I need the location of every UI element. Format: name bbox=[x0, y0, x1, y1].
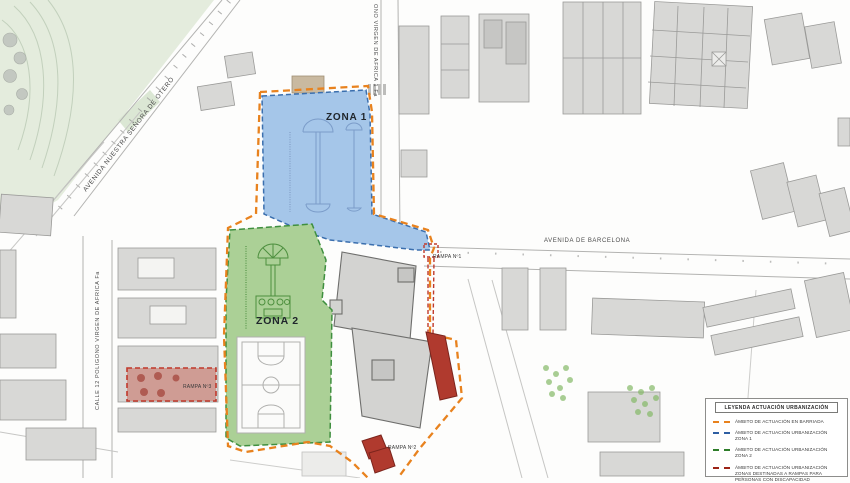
zona1-dash-swatch bbox=[713, 432, 730, 434]
rampa3-label: RAMPA Nº3 bbox=[183, 384, 212, 390]
street-label-virgen-africa: ONO VIRGEN DE AFRICA 1 Fa bbox=[372, 4, 378, 97]
sports-court bbox=[237, 337, 305, 433]
zone2-label: ZONA 2 bbox=[256, 315, 299, 327]
legend-item-barriada: ÁMBITO DE ACTUACIÓN EN BARRIADA bbox=[706, 419, 847, 425]
legend-item-zona2: ÁMBITO DE ACTUACIÓN URBANIZACIÓN ZONA 2 bbox=[706, 447, 847, 459]
rampa-2: RAMPA Nº2 bbox=[362, 435, 417, 473]
zona2-dash-swatch bbox=[713, 449, 730, 451]
legend-item-label: ÁMBITO DE ACTUACIÓN URBANIZACIÓN ZONAS D… bbox=[735, 465, 840, 483]
legend-title: LEYENDA ACTUACIÓN URBANIZACIÓN bbox=[715, 402, 838, 413]
legend-item-label: ÁMBITO DE ACTUACIÓN URBANIZACIÓN ZONA 2 bbox=[735, 447, 840, 459]
zone-2-area: ZONA 2 bbox=[226, 224, 332, 446]
central-building-complex bbox=[330, 252, 432, 428]
legend-item-label: ÁMBITO DE ACTUACIÓN URBANIZACIÓN ZONA 1 bbox=[735, 430, 840, 442]
legend-item-rampas: ÁMBITO DE ACTUACIÓN URBANIZACIÓN ZONAS D… bbox=[706, 465, 847, 483]
zone1-label: ZONA 1 bbox=[326, 112, 367, 123]
street-label-avenida-barcelona: AVENIDA DE BARCELONA bbox=[544, 238, 630, 244]
rampa2-label: RAMPA Nº2 bbox=[388, 445, 417, 451]
legend-item-zona1: ÁMBITO DE ACTUACIÓN URBANIZACIÓN ZONA 1 bbox=[706, 430, 847, 442]
legend-box: LEYENDA ACTUACIÓN URBANIZACIÓN ÁMBITO DE… bbox=[705, 398, 848, 477]
rampas-dash-swatch bbox=[713, 467, 730, 469]
street-label-calle-poligono: CALLE 12 POLIGONO VIRGEN DE AFRICA Fa bbox=[95, 271, 101, 410]
rampa1-label: RAMPA Nº1 bbox=[433, 254, 462, 260]
rampa-3: RAMPA Nº3 bbox=[127, 368, 216, 401]
x-marked-structure bbox=[712, 52, 726, 66]
legend-item-label: ÁMBITO DE ACTUACIÓN EN BARRIADA bbox=[735, 419, 824, 425]
barriada-dash-swatch bbox=[713, 421, 730, 423]
